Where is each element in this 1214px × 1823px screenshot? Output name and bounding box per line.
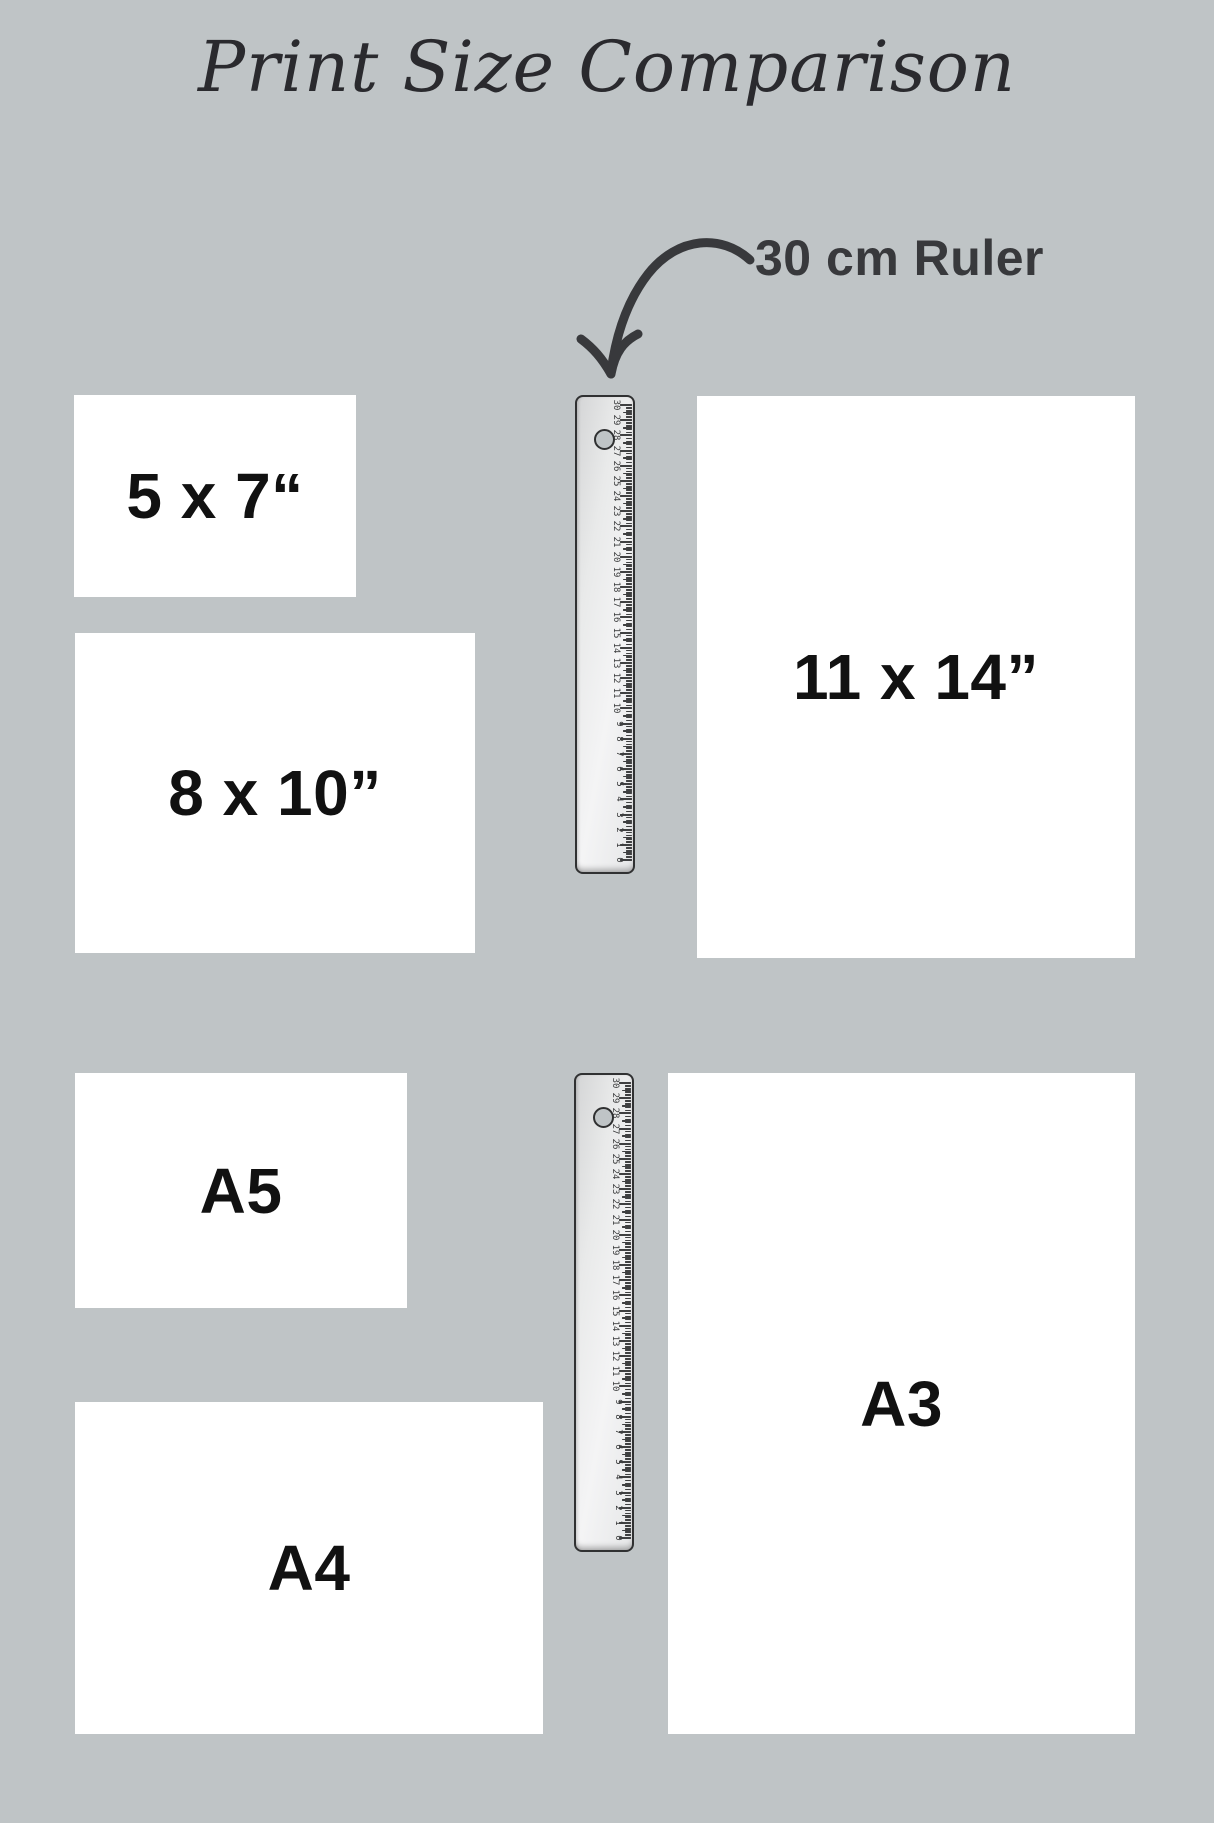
ruler-number: 19 <box>611 566 620 577</box>
ruler-tick <box>625 1201 631 1203</box>
ruler-tick <box>625 1107 631 1109</box>
ruler-tick <box>626 671 632 673</box>
ruler-tick <box>626 756 632 758</box>
ruler-tick <box>619 1219 631 1221</box>
ruler-tick <box>622 1257 631 1259</box>
ruler-tick <box>623 457 632 459</box>
ruler-number: 26 <box>611 460 620 471</box>
ruler-tick <box>625 1440 631 1442</box>
ruler-tick <box>625 1392 631 1394</box>
ruler-number: 30 <box>611 400 620 411</box>
ruler-number: 17 <box>610 1275 619 1286</box>
ruler-tick <box>626 447 632 449</box>
ruler-tick <box>625 1252 631 1254</box>
ruler-number: 14 <box>611 642 620 653</box>
ruler-tick <box>625 1152 631 1154</box>
ruler-tick <box>625 1428 631 1430</box>
ruler-tick <box>626 805 632 807</box>
ruler-tick <box>623 670 632 672</box>
ruler-tick <box>625 1334 631 1336</box>
ruler-number: 19 <box>610 1244 619 1255</box>
ruler-tick <box>625 1464 631 1466</box>
ruler-tick <box>622 1408 631 1410</box>
ruler-tick <box>626 641 632 643</box>
ruler-number: 27 <box>610 1123 619 1134</box>
ruler-tick <box>626 817 632 819</box>
ruler-tick <box>619 1310 631 1312</box>
ruler-number: 28 <box>611 430 620 441</box>
ruler-tick <box>622 1393 631 1395</box>
ruler-tick <box>625 1367 631 1369</box>
ruler-tick <box>623 806 632 808</box>
ruler-tick <box>625 1349 631 1351</box>
ruler-tick <box>625 1322 631 1324</box>
ruler-tick <box>625 1100 631 1102</box>
ruler-tick <box>626 553 632 555</box>
ruler-tick <box>625 1471 631 1473</box>
ruler-tick <box>619 1279 631 1281</box>
ruler-tick <box>626 777 632 779</box>
ruler-tick <box>626 823 632 825</box>
ruler-tick <box>625 1261 631 1263</box>
ruler-tick <box>620 404 632 406</box>
ruler-number: 3 <box>613 1490 622 1495</box>
ruler-tick <box>625 1155 631 1157</box>
ruler-tick <box>625 1167 631 1169</box>
ruler-tick <box>619 1188 631 1190</box>
ruler-tick <box>626 674 632 676</box>
ruler-tick <box>620 450 632 452</box>
ruler-number: 8 <box>613 1414 622 1419</box>
ruler-tick <box>626 689 632 691</box>
ruler-tick <box>620 480 632 482</box>
ruler-tick <box>622 1333 631 1335</box>
ruler-tick <box>625 1285 631 1287</box>
ruler-tick <box>622 1424 631 1426</box>
ruler-tick <box>626 604 632 606</box>
ruler-tick <box>625 1258 631 1260</box>
print-rect-a5: A5 <box>75 1073 407 1308</box>
ruler-tick <box>626 741 632 743</box>
print-rect-a3: A3 <box>668 1073 1135 1734</box>
ruler-tick <box>626 535 632 537</box>
ruler-tick <box>619 1325 631 1327</box>
ruler-tick <box>620 692 632 694</box>
ruler-number: 6 <box>614 766 623 771</box>
ruler-tick <box>625 1510 631 1512</box>
ruler-tick <box>626 802 632 804</box>
ruler-tick <box>626 565 632 567</box>
print-rect-5x7: 5 x 7“ <box>74 395 356 597</box>
ruler-tick <box>622 1166 631 1168</box>
ruler-tick <box>622 1242 631 1244</box>
ruler-tick <box>620 525 632 527</box>
ruler-tick <box>625 1483 631 1485</box>
ruler-tick <box>626 577 632 579</box>
ruler-tick <box>626 789 632 791</box>
ruler-tick <box>626 592 632 594</box>
ruler-number: 25 <box>611 475 620 486</box>
ruler-tick <box>626 568 632 570</box>
ruler-number: 21 <box>610 1214 619 1225</box>
ruler-tick <box>625 1176 631 1178</box>
ruler-tick <box>626 583 632 585</box>
ruler-tick <box>626 462 632 464</box>
ruler-tick <box>623 548 632 550</box>
ruler-tick <box>619 1264 631 1266</box>
ruler-number: 22 <box>610 1199 619 1210</box>
page-title: Print Size Comparison <box>0 26 1214 108</box>
ruler-tick <box>625 1140 631 1142</box>
ruler-tick <box>626 832 632 834</box>
ruler-tick <box>626 765 632 767</box>
ruler-tick <box>620 632 632 634</box>
ruler-tick <box>626 726 632 728</box>
ruler-tick <box>625 1267 631 1269</box>
ruler-tick <box>622 1515 631 1517</box>
ruler-tick <box>625 1404 631 1406</box>
print-label-11x14: 11 x 14” <box>793 640 1039 714</box>
ruler-tick <box>622 1348 631 1350</box>
ruler-tick <box>626 513 632 515</box>
ruler-number: 18 <box>610 1260 619 1271</box>
ruler-tick <box>625 1125 631 1127</box>
ruler-tick <box>625 1419 631 1421</box>
ruler-tick <box>619 1340 631 1342</box>
ruler-number: 29 <box>610 1093 619 1104</box>
ruler-tick <box>625 1122 631 1124</box>
ruler-tick <box>625 1292 631 1294</box>
ruler-tick <box>626 459 632 461</box>
ruler-tick <box>620 707 632 709</box>
ruler-tick <box>626 853 632 855</box>
ruler-tick <box>625 1361 631 1363</box>
ruler-tick <box>625 1319 631 1321</box>
ruler-tick <box>625 1389 631 1391</box>
ruler-tick <box>625 1380 631 1382</box>
ruler-tick <box>625 1480 631 1482</box>
ruler-tick <box>626 680 632 682</box>
ruler-tick <box>626 656 632 658</box>
ruler-tick <box>625 1358 631 1360</box>
print-label-a4: A4 <box>268 1531 351 1605</box>
ruler-tick <box>620 677 632 679</box>
ruler-number: 28 <box>610 1108 619 1119</box>
ruler-tick <box>623 442 632 444</box>
print-rect-a4: A4 <box>75 1402 543 1734</box>
ruler-tick <box>626 629 632 631</box>
print-label-8x10: 8 x 10” <box>168 756 381 830</box>
ruler-tick <box>626 626 632 628</box>
ruler-number: 30 <box>610 1078 619 1089</box>
ruler-tick <box>626 644 632 646</box>
ruler-tick <box>623 639 632 641</box>
ruler-number: 0 <box>613 1535 622 1540</box>
ruler-tick <box>619 1370 631 1372</box>
ruler-tick <box>626 523 632 525</box>
ruler-tick <box>622 1378 631 1380</box>
ruler-tick <box>625 1307 631 1309</box>
ruler-tick <box>625 1185 631 1187</box>
ruler-tick <box>619 1158 631 1160</box>
ruler-tick <box>622 1135 631 1137</box>
ruler-tick <box>625 1474 631 1476</box>
ruler-tick <box>625 1352 631 1354</box>
ruler-tick <box>626 705 632 707</box>
ruler-number: 9 <box>613 1399 622 1404</box>
ruler-number: 20 <box>611 551 620 562</box>
ruler-30cm-bottom: 0123456789101112131415161718192021222324… <box>574 1073 634 1552</box>
ruler-number: 6 <box>613 1444 622 1449</box>
ruler-tick <box>626 762 632 764</box>
ruler-tick <box>625 1164 631 1166</box>
ruler-number: 10 <box>610 1381 619 1392</box>
ruler-tick <box>625 1273 631 1275</box>
ruler-tick <box>626 477 632 479</box>
ruler-tick <box>625 1489 631 1491</box>
ruler-tick <box>626 410 632 412</box>
ruler-tick <box>620 662 632 664</box>
ruler-tick <box>625 1395 631 1397</box>
ruler-tick <box>620 419 632 421</box>
ruler-tick <box>620 647 632 649</box>
ruler-tick <box>625 1146 631 1148</box>
ruler-tick <box>623 609 632 611</box>
ruler-tick <box>626 623 632 625</box>
print-size-comparison-poster: Print Size Comparison 30 cm Ruler 5 x 7“… <box>0 0 1214 1823</box>
ruler-tick <box>625 1313 631 1315</box>
ruler-number: 21 <box>611 536 620 547</box>
ruler-tick <box>626 650 632 652</box>
ruler-tick <box>625 1231 631 1233</box>
ruler-tick <box>625 1210 631 1212</box>
ruler-tick <box>625 1255 631 1257</box>
ruler-tick <box>626 826 632 828</box>
ruler-tick <box>626 659 632 661</box>
ruler-tick <box>626 711 632 713</box>
ruler-tick <box>626 702 632 704</box>
ruler-tick <box>626 735 632 737</box>
ruler-tick <box>626 698 632 700</box>
print-label-a5: A5 <box>200 1154 283 1228</box>
ruler-number: 4 <box>614 797 623 802</box>
ruler-number: 23 <box>611 506 620 517</box>
ruler-tick <box>622 1484 631 1486</box>
ruler-tick <box>625 1085 631 1087</box>
ruler-tick <box>625 1116 631 1118</box>
ruler-number: 5 <box>613 1459 622 1464</box>
ruler-tick <box>626 717 632 719</box>
ruler-tick <box>626 838 632 840</box>
ruler-tick <box>625 1383 631 1385</box>
ruler-tick <box>626 598 632 600</box>
ruler-number: 16 <box>610 1290 619 1301</box>
ruler-number: 29 <box>611 415 620 426</box>
ruler-number: 17 <box>611 597 620 608</box>
ruler-tick <box>626 483 632 485</box>
ruler-tick <box>626 774 632 776</box>
ruler-tick <box>625 1304 631 1306</box>
ruler-tick <box>626 574 632 576</box>
ruler-tick <box>625 1161 631 1163</box>
ruler-tick <box>620 586 632 588</box>
ruler-tick <box>625 1131 631 1133</box>
ruler-number: 23 <box>610 1184 619 1195</box>
ruler-number: 11 <box>610 1366 619 1377</box>
ruler-tick <box>625 1191 631 1193</box>
ruler-tick <box>626 686 632 688</box>
ruler-tick <box>622 1211 631 1213</box>
ruler-number: 15 <box>610 1305 619 1316</box>
ruler-tick <box>626 507 632 509</box>
ruler-tick <box>623 579 632 581</box>
ruler-tick <box>626 498 632 500</box>
ruler-tick <box>625 1094 631 1096</box>
ruler-tick <box>626 589 632 591</box>
ruler-number: 14 <box>610 1320 619 1331</box>
ruler-tick <box>622 1317 631 1319</box>
ruler-tick <box>623 655 632 657</box>
ruler-number: 13 <box>611 657 620 668</box>
ruler-tick <box>619 1234 631 1236</box>
ruler-tick <box>625 1282 631 1284</box>
ruler-tick <box>623 488 632 490</box>
ruler-tick <box>625 1455 631 1457</box>
print-rect-8x10: 8 x 10” <box>75 633 475 953</box>
ruler-tick <box>626 856 632 858</box>
ruler-tick <box>625 1495 631 1497</box>
ruler-number: 15 <box>611 627 620 638</box>
ruler-tick <box>625 1237 631 1239</box>
ruler-tick <box>620 616 632 618</box>
ruler-tick <box>625 1373 631 1375</box>
ruler-tick <box>625 1216 631 1218</box>
ruler-tick <box>619 1385 631 1387</box>
ruler-tick <box>626 808 632 810</box>
ruler-tick <box>622 1499 631 1501</box>
ruler-tick <box>625 1298 631 1300</box>
ruler-number: 12 <box>610 1351 619 1362</box>
ruler-tick <box>626 486 632 488</box>
ruler-number: 20 <box>610 1229 619 1240</box>
ruler-tick <box>623 564 632 566</box>
ruler-number: 1 <box>614 842 623 847</box>
ruler-tick <box>626 841 632 843</box>
ruler-tick <box>622 1105 631 1107</box>
ruler-tick <box>619 1097 631 1099</box>
ruler-number: 26 <box>610 1138 619 1149</box>
ruler-tick <box>620 510 632 512</box>
ruler-tick <box>625 1501 631 1503</box>
ruler-number: 0 <box>614 857 623 862</box>
ruler-tick <box>625 1364 631 1366</box>
ruler-tick <box>626 559 632 561</box>
ruler-tick <box>626 850 632 852</box>
ruler-tick <box>622 1196 631 1198</box>
ruler-tick <box>626 492 632 494</box>
ruler-tick <box>625 1525 631 1527</box>
ruler-tick <box>626 504 632 506</box>
ruler-tick <box>626 847 632 849</box>
ruler-tick <box>625 1534 631 1536</box>
ruler-tick <box>625 1410 631 1412</box>
ruler-tick <box>626 695 632 697</box>
ruler-tick <box>619 1112 631 1114</box>
ruler-tick <box>626 432 632 434</box>
ruler-tick <box>626 407 632 409</box>
ruler-tick <box>619 1173 631 1175</box>
ruler-tick <box>626 635 632 637</box>
ruler-tick <box>626 714 632 716</box>
ruler-tick <box>626 793 632 795</box>
ruler-tick <box>625 1376 631 1378</box>
ruler-tick <box>619 1355 631 1357</box>
ruler-tick <box>622 1469 631 1471</box>
ruler-tick <box>626 668 632 670</box>
ruler-tick <box>626 786 632 788</box>
ruler-tick <box>626 796 632 798</box>
ruler-number: 8 <box>614 736 623 741</box>
ruler-tick <box>619 1082 631 1084</box>
ruler-30cm-top: 0123456789101112131415161718192021222324… <box>575 395 635 874</box>
ruler-number: 1 <box>613 1520 622 1525</box>
ruler-tick <box>619 1203 631 1205</box>
print-rect-11x14: 11 x 14” <box>697 396 1135 958</box>
ruler-tick <box>620 495 632 497</box>
ruler-tick <box>626 416 632 418</box>
ruler-number: 12 <box>611 673 620 684</box>
ruler-tick <box>626 453 632 455</box>
ruler-tick <box>626 614 632 616</box>
ruler-tick <box>620 434 632 436</box>
ruler-tick <box>626 441 632 443</box>
ruler-tick <box>625 1222 631 1224</box>
ruler-tick <box>625 1531 631 1533</box>
ruler-tick <box>623 624 632 626</box>
ruler-tick <box>626 429 632 431</box>
ruler-tick <box>626 474 632 476</box>
ruler-tick <box>625 1243 631 1245</box>
ruler-tick <box>626 750 632 752</box>
ruler-tick <box>626 771 632 773</box>
ruler-tick <box>622 1287 631 1289</box>
ruler-tick <box>626 580 632 582</box>
ruler-tick <box>625 1091 631 1093</box>
ruler-tick <box>625 1486 631 1488</box>
ruler-tick <box>626 620 632 622</box>
ruler-tick <box>625 1398 631 1400</box>
ruler-number: 10 <box>611 703 620 714</box>
ruler-tick <box>623 761 632 763</box>
ruler-tick <box>625 1110 631 1112</box>
ruler-tick <box>625 1328 631 1330</box>
ruler-number: 3 <box>614 812 623 817</box>
ruler-tick <box>626 607 632 609</box>
ruler-tick <box>622 1120 631 1122</box>
ruler-tick <box>626 422 632 424</box>
ruler-tick <box>625 1119 631 1121</box>
ruler-tick <box>625 1213 631 1215</box>
ruler-tick <box>626 444 632 446</box>
ruler-tick <box>623 715 632 717</box>
ruler-number: 27 <box>611 445 620 456</box>
ruler-tick <box>623 730 632 732</box>
print-label-5x7: 5 x 7“ <box>126 459 303 533</box>
ruler-tick <box>625 1289 631 1291</box>
ruler-tick <box>620 601 632 603</box>
ruler-number: 2 <box>613 1505 622 1510</box>
ruler-tick <box>626 550 632 552</box>
